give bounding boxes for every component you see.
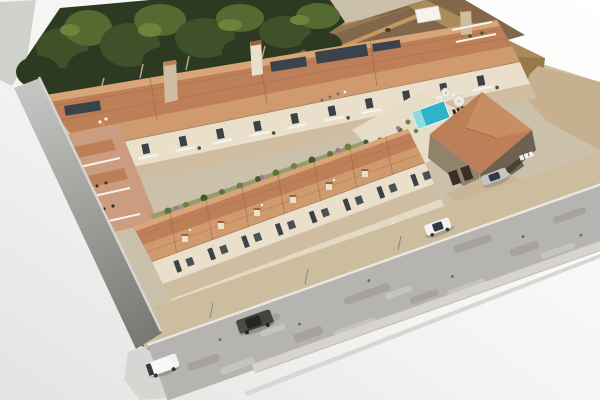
- shrub: [406, 120, 411, 125]
- lounger: [105, 182, 108, 185]
- chimney: [326, 183, 332, 190]
- aerial-development-render: [0, 0, 600, 400]
- rock: [385, 28, 391, 32]
- terrace-chair: [104, 117, 107, 120]
- plant: [480, 31, 484, 35]
- orange-parasol: [101, 122, 105, 126]
- chimney: [290, 196, 296, 203]
- bougainvillea: [336, 148, 340, 152]
- roof-table: [344, 91, 347, 94]
- tree-highlight: [290, 15, 310, 25]
- chimney: [254, 209, 260, 216]
- plant: [468, 34, 472, 38]
- lounger: [111, 204, 114, 207]
- parasol-pole: [445, 92, 447, 94]
- chimney-cap: [362, 169, 369, 171]
- chimney-cap: [326, 182, 333, 184]
- terrace-chair: [98, 120, 101, 123]
- tree-highlight: [218, 19, 242, 31]
- bougainvillea: [174, 206, 178, 210]
- chimney: [362, 170, 368, 177]
- chimney-cap: [182, 234, 189, 236]
- chimney: [182, 235, 188, 242]
- roof-lounger: [329, 96, 332, 99]
- roof-vent: [261, 204, 263, 206]
- render-canvas: [0, 0, 600, 400]
- chimney-cap: [254, 208, 261, 210]
- tree-highlight: [138, 23, 162, 37]
- shrub: [291, 163, 297, 169]
- parasol-pole: [458, 100, 460, 102]
- bougainvillea: [260, 175, 264, 179]
- lounger: [96, 185, 99, 188]
- chimney-cap: [290, 195, 297, 197]
- chimney: [218, 222, 224, 229]
- roof-vent: [189, 229, 191, 231]
- stair-tower: [163, 60, 178, 103]
- roof-lounger: [337, 93, 340, 96]
- shrub: [414, 129, 418, 133]
- tree-highlight: [60, 24, 80, 36]
- roof-vent: [333, 179, 335, 181]
- bougainvillea: [396, 126, 400, 130]
- chimney-cap: [218, 221, 225, 223]
